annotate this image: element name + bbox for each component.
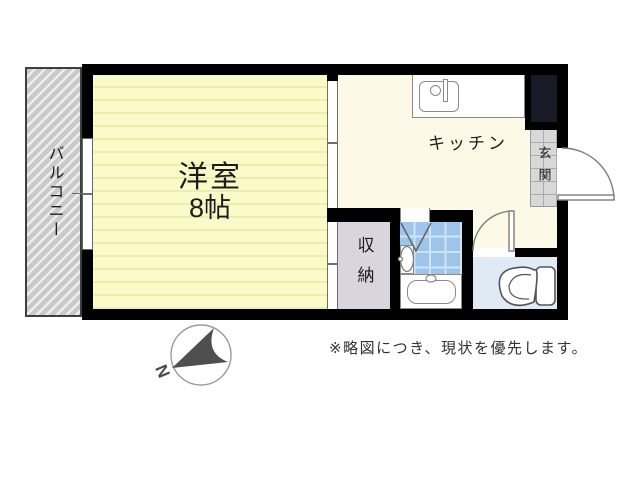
- kitchen-counter: [412, 75, 525, 118]
- closet-area: 収納: [338, 222, 390, 309]
- bathtub-panel: [400, 274, 462, 309]
- western-room-size-label: 8帖: [189, 194, 231, 224]
- wall: [82, 64, 568, 75]
- wall: [82, 309, 568, 320]
- closet-label: 収納: [352, 236, 377, 296]
- toilet-room-area: [473, 257, 557, 309]
- balcony-label: バルコニー: [42, 145, 66, 240]
- kitchen-faucet-bar: [443, 79, 448, 102]
- shaft-box: [531, 75, 557, 122]
- sliding-door-joint: [328, 263, 337, 265]
- western-room-label: 洋室: [178, 161, 242, 194]
- kitchen-label: キッチン: [428, 129, 508, 154]
- wall: [515, 248, 557, 257]
- kitchen-faucet-icon: [430, 85, 441, 96]
- wall: [82, 64, 93, 138]
- entrance-area: 玄関: [530, 130, 557, 207]
- bath-sink-panel: [400, 245, 414, 274]
- balcony-area: バルコニー: [25, 67, 82, 317]
- entrance-label: 玄関: [535, 146, 554, 190]
- wall: [327, 208, 400, 222]
- sliding-door-joint: [328, 142, 337, 144]
- wall: [557, 200, 568, 320]
- wall: [525, 122, 558, 130]
- window-sill-mark: [72, 193, 82, 194]
- window-divider: [82, 193, 93, 195]
- wall: [557, 64, 568, 148]
- western-room-area: 洋室 8帖: [93, 75, 327, 309]
- wall: [525, 75, 531, 122]
- bathtub-icon: [407, 280, 456, 304]
- floor-plan: バルコニー 洋室 8帖 収納 玄関: [0, 0, 640, 480]
- wall: [390, 222, 400, 309]
- wall: [462, 210, 473, 309]
- bath-door-gap: [400, 208, 430, 222]
- entrance-door-gap: [557, 148, 568, 200]
- toilet-door-gap: [475, 248, 515, 257]
- north-label: N: [152, 362, 174, 381]
- wall: [82, 250, 93, 320]
- disclaimer-note: ※略図につき、現状を優先します。: [329, 337, 588, 358]
- compass-icon: N: [152, 325, 231, 385]
- sliding-door-partition: [327, 75, 338, 309]
- wall: [327, 75, 338, 81]
